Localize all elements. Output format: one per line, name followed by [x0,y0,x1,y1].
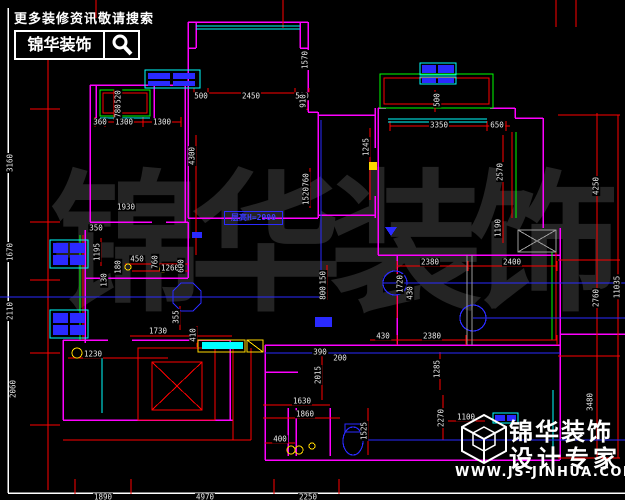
dimension-label: 910 [299,93,307,109]
dimension-label: 2380 [422,332,442,340]
search-icon [103,32,138,58]
dimension-label: 1730 [148,327,168,335]
dimension-label: 1300 [152,118,172,126]
dimension-label: 200 [332,354,348,362]
dimension-label: 2380 [420,258,440,266]
dimension-label: 1890 [93,493,113,500]
cube-logo-icon [458,413,510,465]
dimension-label: 4250 [592,176,600,196]
dimension-label: 650 [489,121,505,129]
dimension-label: 1860 [295,410,315,418]
brand-search-box: 锦华装饰 [14,30,140,60]
dimension-label: 3350 [429,121,449,129]
dimension-label: 1300 [114,118,134,126]
dimension-label: 500 [193,92,209,100]
dimension-label: 410 [189,327,197,343]
dimension-label: 2270 [437,408,445,428]
dimension-label: 1245 [362,137,370,157]
dimension-label: 1630 [292,397,312,405]
dimension-label: 2450 [241,92,261,100]
dimension-label: 1230 [83,350,103,358]
dimension-label: 2250 [298,493,318,500]
dimension-label: 500 [433,92,441,108]
dimension-label: 1190 [494,218,502,238]
dimension-label: 1195 [93,242,101,262]
dimension-label: 1525 [360,421,368,441]
dimension-label: 3480 [586,392,594,412]
dimension-label: 780 [114,103,122,119]
search-hint-text: 更多装修资讯敬请搜索 [14,8,154,27]
dimension-label: 450 [129,255,145,263]
dimension-label: 4300 [188,146,196,166]
brand-name: 锦华装饰 [16,32,103,58]
dimension-label: 1570 [301,50,309,70]
dimension-label: 390 [312,348,328,356]
dimension-label: 2015 [314,365,322,385]
dimension-label: 350 [88,224,104,232]
ceiling-height-label: 层高H=2900 [224,211,283,225]
dimension-label: 2570 [496,162,504,182]
dimension-label: 600 [177,258,185,274]
dimension-label: 760 [151,254,159,270]
dimension-label: 1930 [116,203,136,211]
dimension-label: 400 [272,435,288,443]
dimension-label: 2760 [592,288,600,308]
dimension-label: 430 [375,332,391,340]
dimension-label: 430 [406,285,414,301]
dimension-label: 1520 [302,186,310,206]
dimension-label: 800 [319,285,327,301]
dimension-label: 4970 [195,493,215,500]
dimension-label: 360 [92,118,108,126]
dimension-label: 3160 [6,153,14,173]
dimension-label: 2060 [9,379,17,399]
dimension-label: 130 [100,272,108,288]
dimension-label: 1720 [396,274,404,294]
dimension-label: 11035 [613,275,621,300]
dimension-label: 180 [114,259,122,275]
dimension-label: 2110 [6,301,14,321]
dimension-label: 2400 [502,258,522,266]
cad-floorplan-view: 锦华装饰 [0,0,625,500]
dimension-label: 1285 [433,359,441,379]
footer-url: WWW.JS-JINHUA.COM [455,465,625,480]
dimension-label: 1670 [6,242,14,262]
dimension-label: 355 [172,309,180,325]
header-logo-block: 更多装修资讯敬请搜索 锦华装饰 [14,8,154,60]
